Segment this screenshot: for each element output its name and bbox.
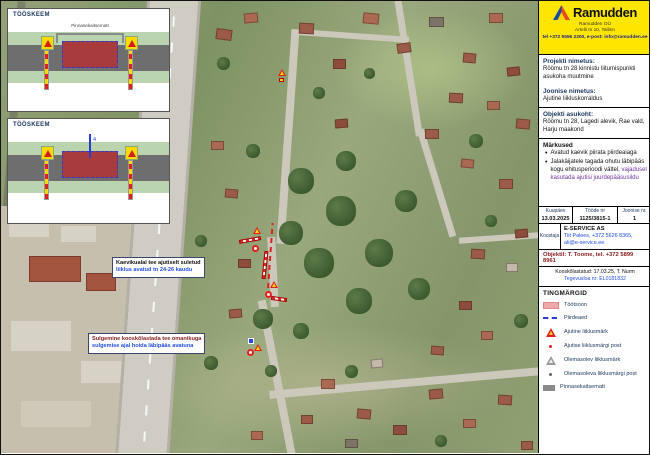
house-roof (459, 301, 472, 310)
house-roof (516, 118, 531, 129)
building-roof (29, 256, 81, 282)
exist-post-swatch-icon (543, 370, 559, 379)
house-roof (321, 379, 335, 389)
house-roof (299, 23, 315, 35)
ground-pad (11, 321, 71, 351)
notes-title: Märkused (543, 142, 647, 149)
house-roof (507, 66, 521, 76)
house-roof (449, 93, 464, 104)
house-roof (515, 228, 529, 238)
mat-label: Pinnasekaitsematt (46, 23, 134, 28)
scheme-title: TÖÖSKEEM (8, 9, 169, 18)
note-line: Sulgemine kooskõlastada tee omanikuga (92, 336, 201, 343)
brand-name: Ramudden (573, 5, 637, 20)
notes-section: Märkused Avatud kaevik piirata piirdeaia… (539, 138, 650, 206)
ramudden-logo-icon (553, 5, 570, 20)
house-roof (429, 388, 444, 399)
note-bullet: Avatud kaevik piirata piirdeaiaga (545, 150, 647, 158)
scheme-drawing: 4 (8, 130, 169, 216)
tree (246, 144, 260, 158)
house-roof (498, 395, 513, 406)
author-section: Koostaja E-SERVICE AS Tiit Palees, +372 … (539, 224, 650, 251)
meta-date: 13.03.2025 (539, 215, 573, 223)
tree (365, 239, 393, 267)
tree (313, 87, 325, 99)
tree (288, 168, 314, 194)
house-roof (362, 12, 379, 25)
prohibition-sign-icon (252, 245, 259, 252)
sign-post (44, 160, 49, 200)
tree (326, 196, 356, 226)
tree (304, 248, 334, 278)
closure-coordination-note: Sulgemine kooskõlastada tee omanikuga su… (88, 333, 205, 354)
work-scheme-panel-1: TÖÖSKEEM Pinnasekaitsematt (7, 8, 170, 112)
tree (293, 323, 309, 339)
meta-header: Joonise nr. (618, 207, 650, 215)
title-block-panel: Ramudden Ramudden OÜ Artelli tn 10, Tall… (538, 1, 650, 453)
house-roof (251, 431, 263, 440)
project-value: Röömu tn 28 kinnistu liitumispunkti asuk… (543, 66, 647, 82)
ground-pad (61, 226, 96, 242)
tree (435, 435, 447, 447)
house-roof (301, 415, 313, 424)
temp-warning-sign-icon (278, 69, 286, 76)
scheme-drawing: Pinnasekaitsematt (8, 20, 169, 106)
meta-table: Kuupäev Tööde nr Joonise nr. 13.03.2025 … (539, 206, 650, 224)
approval-line: Kooskõlastatud: 17.03.25, T. Nurm (541, 269, 649, 276)
legend-section: TINGMÄRGID TöötsoonPiirdeaedAjutine liik… (539, 287, 650, 399)
legend-item: Olemasolev liiklusmärk (543, 356, 647, 365)
house-roof (229, 309, 243, 319)
approval-section: Kooskõlastatud: 17.03.25, T. Nurm Tegevu… (539, 267, 650, 287)
house-roof (499, 179, 513, 189)
house-roof (471, 249, 486, 260)
legend-item: Olemasoleva liiklusmärgi post (543, 370, 647, 379)
tree (364, 68, 375, 79)
roadworks-sign-icon (125, 146, 138, 160)
project-label: Projekti nimetus: (543, 58, 647, 65)
site-location-section: Objekti asukoht: Röömu tn 28, Lagedi ale… (539, 107, 650, 138)
tree (346, 288, 372, 314)
legend-label: Olemasolev liiklusmärk (564, 357, 620, 363)
mat-swatch-icon (543, 385, 555, 391)
tree (469, 134, 483, 148)
tree (204, 356, 218, 370)
note-bullet: Jalakäijatele tagada ohutu läbipääs kogu… (545, 159, 647, 182)
street-segment (299, 29, 409, 43)
dimension-line (89, 134, 91, 158)
house-roof (463, 419, 476, 428)
legend-label: Pinnasekaitsematt (560, 384, 605, 390)
house-roof (396, 42, 411, 54)
legend-label: Ajutise liiklusmärgi post (564, 343, 621, 349)
house-roof (429, 17, 444, 27)
permit-line: Tegevusloa nr: EL0181832 (541, 276, 649, 283)
legend-item: Ajutine liiklusmärk (543, 328, 647, 337)
author-phone: Tiit Palees, +372 5626 8365, (564, 233, 633, 240)
note-line: sulgemise ajal hoida läbipääs avatuna (92, 343, 201, 350)
tree (279, 221, 303, 245)
house-roof (431, 346, 445, 356)
work-zone-rect (62, 41, 118, 68)
meta-header: Kuupäev (539, 207, 573, 215)
ground-pad (81, 361, 126, 383)
site-contact-line: Objektil: T. Toome, tel. +372 5899 8961 (539, 250, 650, 267)
sign-post (128, 50, 133, 90)
traffic-management-plan: TÖÖSKEEM Pinnasekaitsematt TÖÖSKEEM 4 (0, 0, 650, 455)
legend-label: Töötsoon (564, 302, 587, 308)
verge-band (8, 181, 169, 193)
company-contact: tel +372 5556 2200, e-post: info@ramudde… (539, 35, 650, 41)
house-roof (335, 119, 349, 129)
house-roof (371, 358, 384, 368)
legend-label: Piirdeaed (564, 315, 587, 321)
house-roof (461, 158, 475, 168)
tree (345, 365, 358, 378)
house-roof (345, 439, 358, 448)
exist-sign-swatch-icon (543, 356, 559, 365)
house-roof (463, 52, 477, 63)
location-label: Objekti asukoht: (543, 111, 647, 118)
legend-item: Töötsoon (543, 301, 647, 309)
temp-warning-sign-icon (254, 344, 262, 351)
house-roof (238, 259, 251, 268)
house-roof (393, 425, 407, 435)
temp-warning-sign-icon (253, 227, 261, 234)
logo-block: Ramudden Ramudden OÜ Artelli tn 10, Tall… (539, 1, 650, 55)
roadworks-sign-icon (41, 146, 54, 160)
house-roof (225, 188, 239, 198)
note-line: Kaevikualal tee ajutiselt suletud (116, 260, 201, 267)
drawing-name-section: Joonise nimetus: Ajutine liikluskorraldu… (539, 85, 650, 107)
author-email: ali@e-service.ee (564, 240, 633, 247)
workzone-swatch-icon (543, 302, 559, 309)
house-roof (425, 129, 439, 139)
temp-sign-swatch-icon (543, 328, 559, 337)
tree (217, 57, 230, 70)
author-company: E-SERVICE AS (564, 226, 633, 234)
aerial-map: TÖÖSKEEM Pinnasekaitsematt TÖÖSKEEM 4 (1, 1, 538, 453)
verge-band (8, 71, 169, 83)
tree (253, 309, 273, 329)
dimension-label: 4 (93, 137, 96, 143)
note-line: liiklus avatud tn 24-26 kaudu (116, 267, 201, 274)
legend-item: Pinnasekaitsematt (543, 384, 647, 391)
legend-label: Ajutine liiklusmärk (564, 329, 608, 335)
house-roof (211, 141, 224, 150)
fence-swatch-icon (543, 314, 559, 323)
ground-pad (21, 401, 91, 427)
house-roof (215, 28, 232, 41)
house-roof (521, 441, 533, 450)
work-scheme-panel-2: TÖÖSKEEM 4 (7, 118, 170, 224)
drawing-value: Ajutine liikluskorraldus (543, 96, 647, 104)
legend-label: Olemasoleva liiklusmärgi post (564, 371, 637, 377)
tree (485, 215, 497, 227)
tree (514, 314, 528, 328)
house-roof (333, 59, 346, 69)
tree (336, 151, 356, 171)
house-roof (489, 13, 503, 23)
legend-title: TINGMÄRGID (543, 290, 647, 297)
tree (408, 278, 430, 300)
tree (195, 235, 207, 247)
house-roof (487, 101, 500, 110)
meta-work-number: 1125/3815-1 (573, 215, 618, 223)
mat-bracket (56, 33, 124, 43)
temp-warning-sign-icon (270, 281, 278, 288)
house-roof (357, 408, 372, 419)
tree (265, 365, 277, 377)
legend-item: Piirdeaed (543, 314, 647, 323)
roadworks-sign-icon (125, 36, 138, 50)
scheme-title: TÖÖSKEEM (8, 119, 169, 128)
temp-post-swatch-icon (543, 342, 559, 351)
house-roof (506, 263, 518, 272)
author-label: Koostaja (539, 224, 561, 250)
meta-drawing-number: 1 (618, 215, 650, 223)
sign-post (128, 160, 133, 200)
temp-sign-plate-icon (279, 78, 284, 82)
sign-post (44, 50, 49, 90)
house-roof (481, 331, 493, 340)
street-segment (394, 1, 423, 137)
prohibition-sign-icon (247, 349, 254, 356)
legend-item: Ajutise liiklusmärgi post (543, 342, 647, 351)
tree (395, 190, 417, 212)
drawing-label: Joonise nimetus: (543, 88, 647, 95)
house-roof (244, 12, 259, 23)
road-closed-note: Kaevikualal tee ajutiselt suletud liiklu… (112, 257, 205, 278)
meta-header: Tööde nr (573, 207, 618, 215)
project-name-section: Projekti nimetus: Röömu tn 28 kinnistu l… (539, 55, 650, 85)
roadworks-sign-icon (41, 36, 54, 50)
location-value: Röömu tn 28, Lagedi alevik, Rae vald, Ha… (543, 119, 647, 135)
